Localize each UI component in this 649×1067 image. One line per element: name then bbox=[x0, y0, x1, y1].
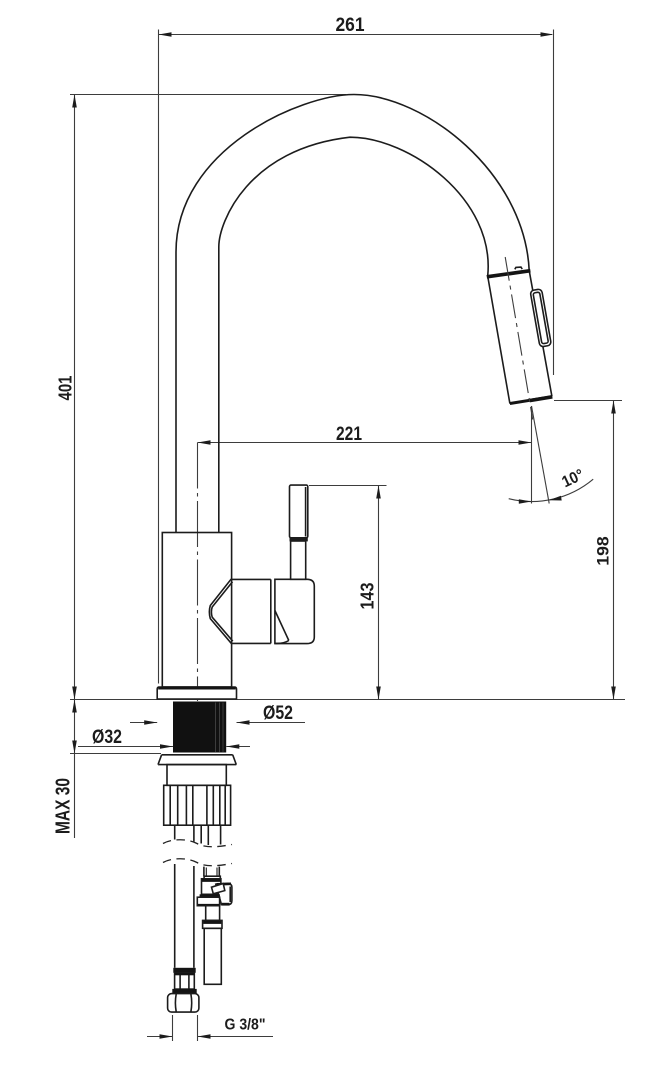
svg-text:MAX 30: MAX 30 bbox=[53, 778, 75, 834]
svg-text:G 3/8": G 3/8" bbox=[225, 1017, 266, 1034]
svg-text:198: 198 bbox=[594, 536, 612, 566]
svg-text:221: 221 bbox=[336, 423, 362, 445]
svg-text:261: 261 bbox=[336, 14, 365, 36]
svg-text:Ø32: Ø32 bbox=[92, 727, 122, 748]
svg-text:Ø52: Ø52 bbox=[263, 703, 293, 724]
svg-text:143: 143 bbox=[357, 583, 378, 610]
svg-text:401: 401 bbox=[55, 376, 76, 401]
